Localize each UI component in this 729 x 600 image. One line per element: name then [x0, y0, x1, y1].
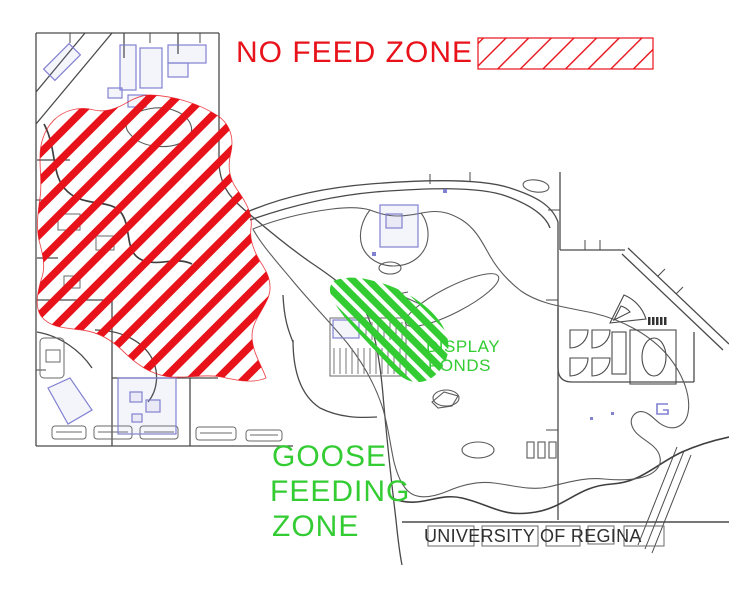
sports-court — [612, 332, 626, 374]
building — [120, 45, 136, 90]
no-feed-zone-legend-swatch — [478, 38, 653, 69]
pond — [379, 262, 401, 274]
running-track-icon — [642, 338, 666, 376]
road — [638, 447, 677, 545]
ball-field-icon — [592, 358, 610, 376]
road — [622, 254, 723, 350]
building — [44, 44, 81, 81]
island — [462, 442, 494, 458]
campus-map-page: NO FEED ZONE DISPLAY PONDS GOOSE FEEDING… — [0, 0, 729, 600]
no-feed-zone-area — [37, 95, 270, 381]
goose-feeding-zone-title-line1: GOOSE — [272, 440, 387, 473]
island — [538, 442, 545, 458]
campus-map: NO FEED ZONE DISPLAY PONDS GOOSE FEEDING… — [0, 0, 729, 600]
road — [652, 455, 691, 553]
island — [522, 178, 549, 194]
no-feed-zone-title: NO FEED ZONE — [236, 36, 473, 69]
building — [46, 350, 60, 362]
display-ponds-label-line2: PONDS — [428, 356, 491, 375]
ball-field-icon — [592, 330, 610, 348]
building — [168, 45, 206, 63]
lakeside-building-wing — [386, 214, 402, 228]
building — [108, 88, 122, 98]
boathouse-symbol — [657, 404, 668, 414]
trail — [392, 437, 729, 514]
building — [140, 48, 162, 88]
building — [130, 392, 142, 402]
road — [283, 295, 293, 342]
display-ponds-label-line1: DISPLAY — [426, 337, 500, 356]
island — [549, 442, 556, 458]
building — [132, 414, 142, 422]
building — [146, 400, 160, 412]
ball-field-icon — [570, 330, 588, 348]
building — [168, 63, 188, 77]
bleachers-icon — [648, 317, 667, 325]
goose-feeding-zone-title-line3: ZONE — [272, 510, 359, 543]
baseball-infield — [614, 306, 630, 320]
goose-feeding-zone-title-line2: FEEDING — [270, 475, 410, 508]
ball-field-icon — [570, 358, 588, 376]
sports-fields — [570, 295, 676, 384]
building-diagonal — [48, 378, 92, 424]
university-of-regina-label: UNIVERSITY OF REGINA — [424, 526, 642, 546]
island — [527, 442, 534, 458]
